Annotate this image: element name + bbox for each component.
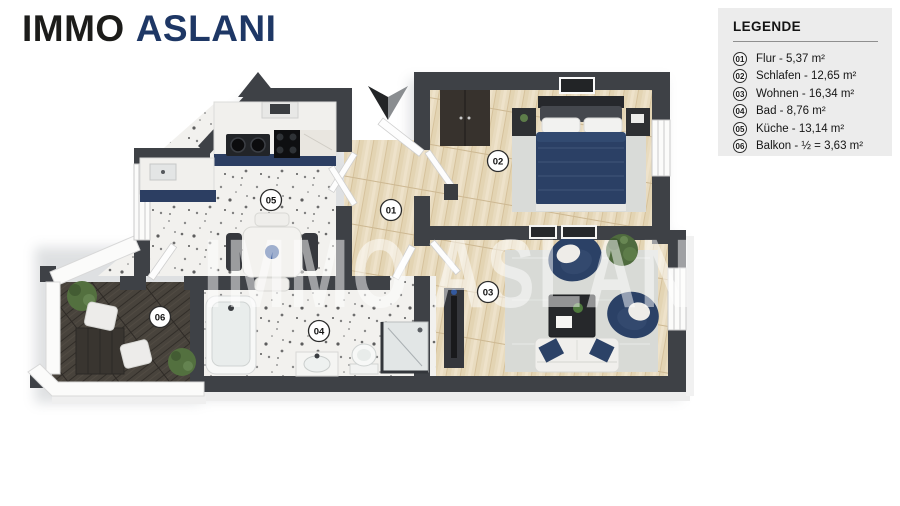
stove-icon bbox=[274, 130, 300, 158]
svg-text:03: 03 bbox=[483, 288, 494, 299]
backsplash bbox=[300, 130, 336, 156]
toilet bbox=[350, 344, 378, 374]
room-badge-kueche: 05 bbox=[261, 190, 282, 211]
bedroom-window bbox=[652, 120, 670, 176]
kitchen-left-front bbox=[140, 190, 216, 202]
bed-pillow-white-2 bbox=[584, 118, 622, 133]
logo: IMMOASLANI bbox=[22, 8, 276, 50]
balcony-railing-left bbox=[46, 282, 60, 374]
bed-pillow-white-1 bbox=[542, 118, 580, 133]
bed-duvet bbox=[536, 132, 626, 206]
legend-item-label: Bad - 8,76 m² bbox=[756, 105, 826, 117]
legend-item: 01 Flur - 5,37 m² bbox=[733, 50, 878, 68]
legend-item-label: Küche - 13,14 m² bbox=[756, 123, 844, 135]
legend-item: 02 Schlafen - 12,65 m² bbox=[733, 68, 878, 86]
balcony-plant-2 bbox=[168, 348, 196, 376]
legend: LEGENDE 01 Flur - 5,37 m² 02 Schlafen - … bbox=[718, 8, 892, 156]
legend-title: LEGENDE bbox=[733, 19, 878, 34]
legend-item-label: Balkon - ½ = 3,63 m² bbox=[756, 140, 863, 152]
logo-part-immo: IMMO bbox=[22, 8, 125, 49]
bedroom-wall-art bbox=[560, 78, 594, 93]
legend-divider bbox=[733, 41, 878, 42]
room-badge-flur: 01 bbox=[381, 200, 402, 221]
stool bbox=[444, 184, 458, 200]
north-arrow-icon bbox=[368, 86, 408, 120]
legend-item-number: 03 bbox=[733, 87, 747, 101]
page: IMMOASLANI bbox=[0, 0, 900, 506]
svg-text:04: 04 bbox=[314, 327, 325, 338]
legend-item-number: 02 bbox=[733, 69, 747, 83]
legend-item: 06 Balkon - ½ = 3,63 m² bbox=[733, 138, 878, 156]
logo-part-aslani: ASLANI bbox=[136, 8, 277, 49]
room-badge-balkon: 06 bbox=[150, 307, 171, 328]
legend-item-number: 04 bbox=[733, 104, 747, 118]
shower bbox=[382, 322, 428, 372]
svg-text:06: 06 bbox=[155, 313, 166, 324]
legend-item-number: 05 bbox=[733, 122, 747, 136]
legend-item-number: 01 bbox=[733, 52, 747, 66]
room-badge-schlafen: 02 bbox=[488, 151, 509, 172]
legend-item: 03 Wohnen - 16,34 m² bbox=[733, 85, 878, 103]
legend-item-label: Wohnen - 16,34 m² bbox=[756, 88, 854, 100]
watermark: IMMO ASLANI bbox=[203, 219, 718, 328]
svg-text:01: 01 bbox=[386, 206, 397, 217]
legend-item-number: 06 bbox=[733, 139, 747, 153]
svg-text:05: 05 bbox=[266, 196, 277, 207]
legend-item: 05 Küche - 13,14 m² bbox=[733, 120, 878, 138]
svg-text:02: 02 bbox=[493, 157, 504, 168]
sofa bbox=[535, 338, 619, 372]
bed-footboard bbox=[536, 204, 626, 211]
legend-item-label: Flur - 5,37 m² bbox=[756, 53, 825, 65]
legend-item: 04 Bad - 8,76 m² bbox=[733, 103, 878, 121]
room-badge-wohnen: 03 bbox=[478, 282, 499, 303]
room-badge-bad: 04 bbox=[309, 321, 330, 342]
legend-item-label: Schlafen - 12,65 m² bbox=[756, 70, 856, 82]
